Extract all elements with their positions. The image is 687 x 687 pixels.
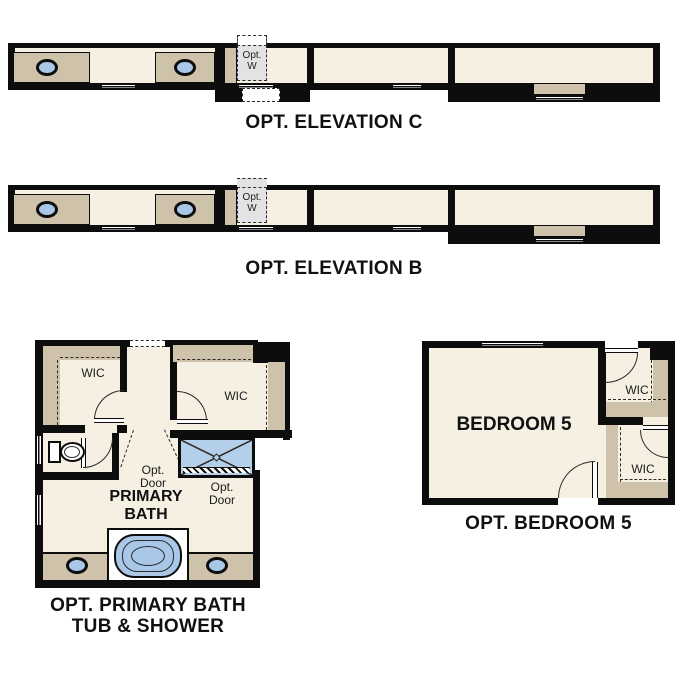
wall [8, 43, 660, 48]
shelf-dashed-line [620, 479, 666, 480]
wall [8, 185, 660, 190]
closet-shelf [606, 402, 668, 417]
door-opening [558, 498, 598, 505]
shower-curb-hatch [183, 467, 250, 473]
floor [15, 48, 653, 83]
shower [178, 437, 255, 478]
window [536, 95, 583, 102]
wall [112, 433, 119, 473]
toilet-seat [64, 446, 80, 458]
bathtub-basin [131, 546, 165, 566]
elevation-c-plan: Opt.W [8, 43, 660, 105]
optional-washer-stub [237, 178, 267, 187]
wall [650, 341, 675, 360]
elevation-c-title: OPT. ELEVATION C [8, 112, 660, 133]
shelf-dashed-line [608, 399, 666, 400]
wic-bottom-label: WIC [618, 463, 668, 476]
wall [653, 43, 660, 102]
optional-washer-box: Opt.W [237, 187, 267, 223]
door-leaf [94, 418, 124, 423]
window [393, 83, 421, 90]
wall [422, 498, 675, 505]
closet-shelf [653, 360, 668, 404]
wall [35, 425, 85, 433]
sink [36, 59, 58, 76]
wall [307, 43, 314, 90]
wall [35, 340, 43, 588]
wic-right-label: WIC [196, 390, 276, 403]
closet-shelf [606, 482, 668, 498]
porch-pad [533, 83, 586, 95]
wall [35, 472, 119, 480]
wall [598, 417, 643, 425]
sink [36, 201, 58, 218]
wall [120, 346, 127, 392]
window [239, 225, 273, 232]
wic-top-label: WIC [606, 384, 668, 397]
cabinet-strip [225, 190, 237, 225]
floor [15, 190, 653, 225]
sink [206, 557, 228, 574]
wall [307, 185, 314, 232]
wall [215, 185, 225, 225]
primary-bath-title: OPT. PRIMARY BATHTUB & SHOWER [20, 595, 276, 637]
wall [8, 225, 455, 232]
elevation-b-plan: Opt.W [8, 185, 660, 247]
wall [215, 43, 225, 83]
wall [422, 341, 429, 505]
bedroom5-room-label: BEDROOM 5 [429, 415, 599, 436]
optional-washer-stub [237, 35, 267, 45]
shelf-dashed-line [651, 360, 652, 404]
door-leaf [177, 419, 208, 424]
optional-washer-box: Opt.W [237, 45, 267, 81]
wall [253, 470, 260, 588]
wall [117, 425, 127, 433]
bedroom5-title: OPT. BEDROOM 5 [420, 513, 677, 534]
primary-bath-room-label: PRIMARYBATH [86, 488, 206, 524]
sink [66, 557, 88, 574]
elevation-b-title: OPT. ELEVATION B [8, 258, 660, 279]
window [102, 83, 135, 90]
primary-bath-plan: WIC WIC Opt.Door Opt.Door PRIMARYBATH [33, 338, 295, 590]
window [482, 341, 543, 348]
window [393, 225, 421, 232]
shelf-dashed-line [60, 357, 120, 358]
sink [174, 201, 196, 218]
opt-door-label: Opt.Door [128, 464, 178, 490]
closet-shelf [606, 425, 618, 485]
window [35, 436, 43, 464]
window [102, 225, 135, 232]
optional-opening-dashed [130, 340, 165, 347]
sink [174, 59, 196, 76]
window [35, 495, 43, 525]
bedroom5-plan: WIC WIC BEDROOM 5 [420, 338, 677, 507]
wall [668, 341, 675, 505]
wall [8, 83, 455, 90]
porch-pad [533, 225, 586, 237]
window [536, 237, 583, 244]
optional-bumpout-dashed [242, 88, 280, 102]
shelf-dashed-line [177, 359, 251, 360]
wall [653, 185, 660, 244]
door-opening [605, 341, 638, 348]
cabinet-strip [225, 48, 237, 83]
